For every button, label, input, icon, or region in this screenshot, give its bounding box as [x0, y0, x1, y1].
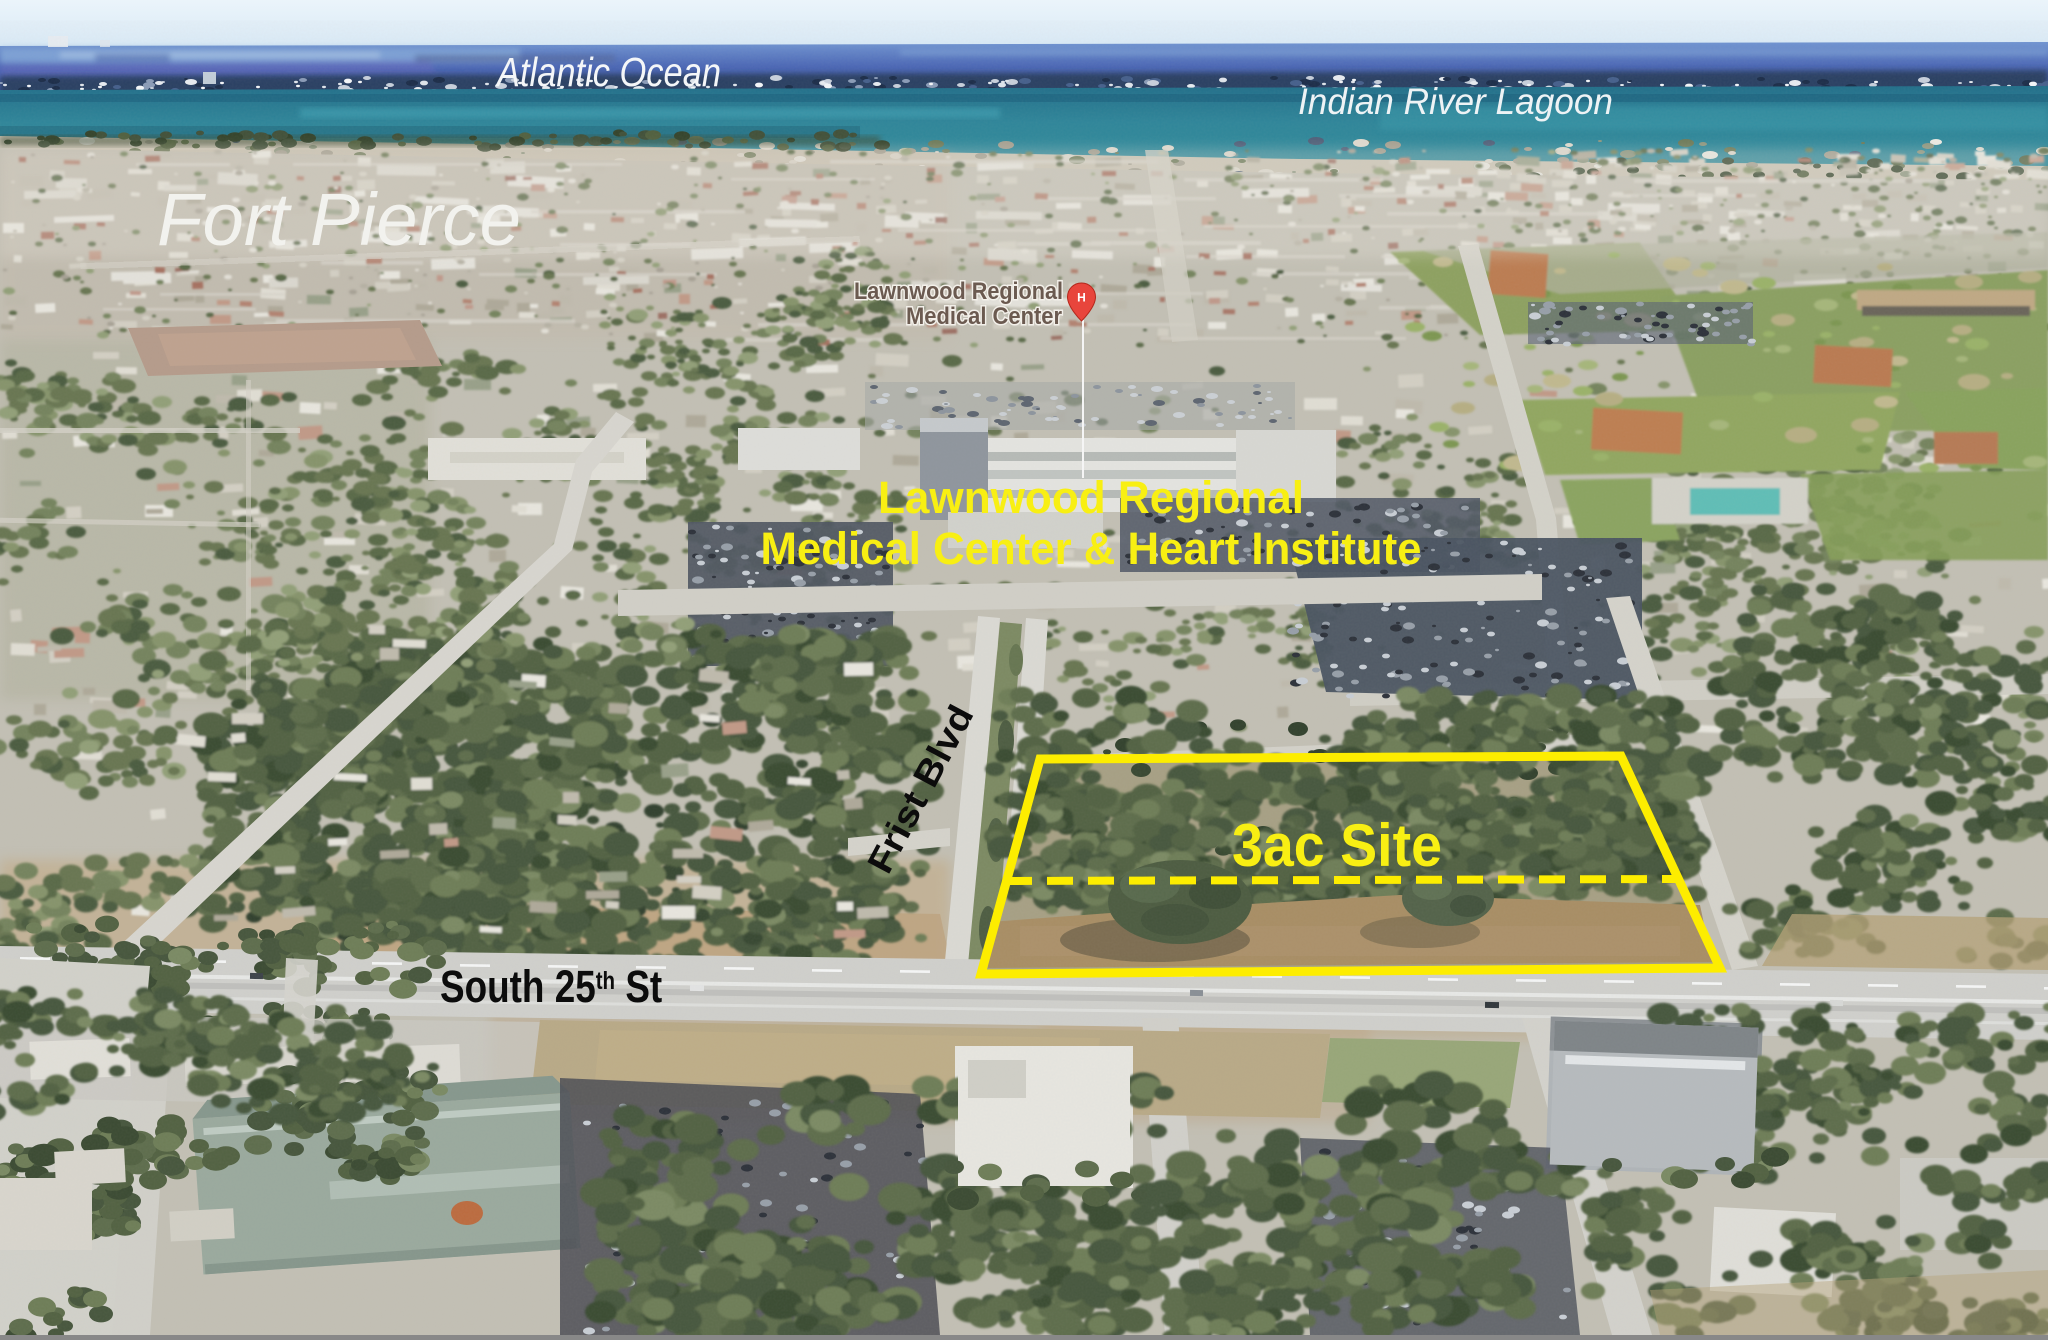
- svg-text:Lawnwood Regional: Lawnwood Regional: [878, 472, 1304, 523]
- svg-text:Medical Center & Heart Institu: Medical Center & Heart Institute: [761, 523, 1422, 574]
- svg-text:Lawnwood Regional: Lawnwood Regional: [854, 278, 1063, 305]
- svg-text:Fort Pierce: Fort Pierce: [157, 178, 521, 261]
- svg-text:South 25th St: South 25th St: [440, 962, 662, 1012]
- svg-text:Atlantic Ocean: Atlantic Ocean: [494, 49, 721, 95]
- svg-text:Medical Center: Medical Center: [906, 303, 1062, 330]
- svg-text:Indian River Lagoon: Indian River Lagoon: [1298, 81, 1613, 122]
- svg-text:H: H: [1077, 291, 1086, 305]
- svg-text:3ac Site: 3ac Site: [1232, 812, 1442, 879]
